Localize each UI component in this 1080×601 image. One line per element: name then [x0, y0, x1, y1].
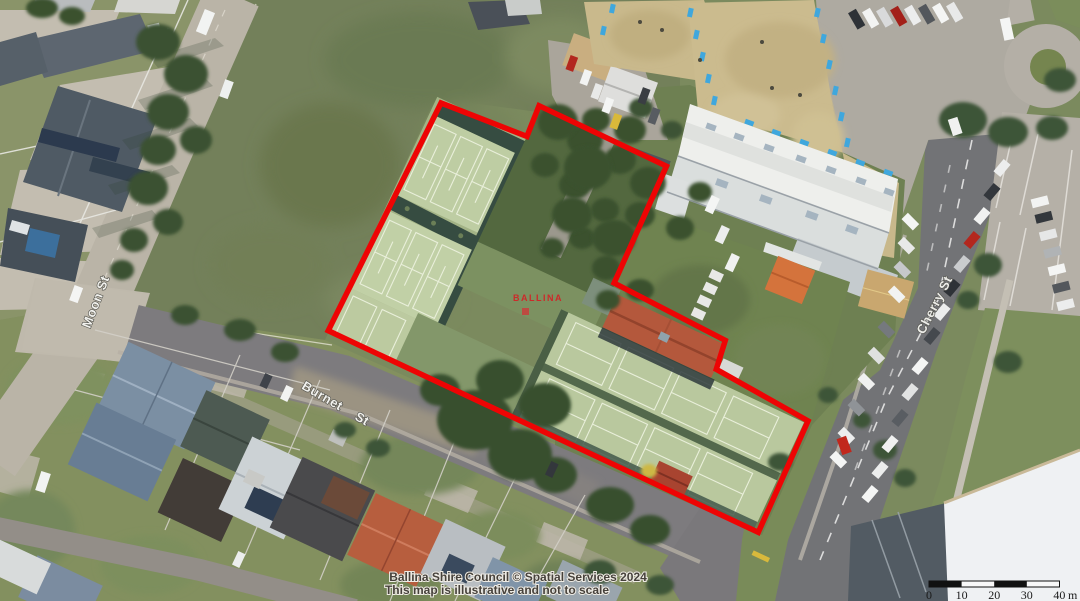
svg-text:20: 20	[988, 588, 1000, 601]
svg-text:30: 30	[1021, 588, 1033, 601]
svg-text:0: 0	[926, 588, 932, 601]
svg-text:m: m	[1068, 588, 1078, 601]
svg-text:40: 40	[1053, 588, 1065, 601]
svg-text:This map is illustrative and n: This map is illustrative and not to scal…	[385, 583, 609, 597]
svg-text:10: 10	[956, 588, 968, 601]
svg-text:BALLINA: BALLINA	[513, 293, 563, 303]
svg-text:Ballina Shire Council © Spatia: Ballina Shire Council © Spatial Services…	[389, 570, 647, 584]
